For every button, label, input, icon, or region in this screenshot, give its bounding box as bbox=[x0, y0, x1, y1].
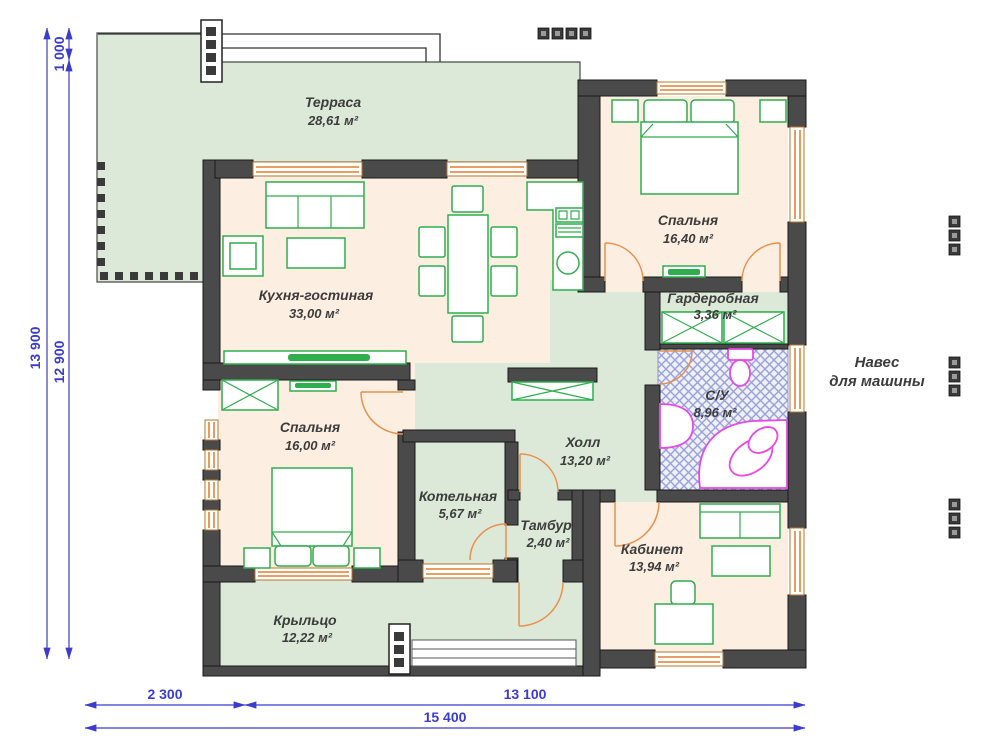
dim-left-top: 1 000 bbox=[51, 36, 67, 71]
coffee-table-icon bbox=[287, 238, 345, 268]
chimney-icon bbox=[201, 20, 222, 82]
area-bathroom: 8,96 м² bbox=[694, 405, 738, 420]
area-wardrobe: 3,36 м² bbox=[694, 307, 738, 322]
closet-icon bbox=[222, 380, 278, 410]
label-wardrobe: Гардеробная bbox=[667, 290, 758, 306]
floor-plan-page: 13 900 12 900 1 000 2 300 13 100 15 400 … bbox=[0, 0, 1000, 750]
window-icon bbox=[205, 480, 218, 500]
porch-pillar-icon bbox=[389, 624, 410, 674]
label-carport-line2: для машины bbox=[829, 373, 925, 390]
area-bedroom1: 16,40 м² bbox=[663, 231, 714, 246]
dim-bottom-right: 13 100 bbox=[504, 686, 547, 702]
dim-bottom-left: 2 300 bbox=[147, 686, 182, 702]
window-icon bbox=[790, 528, 804, 595]
label-bathroom: С/У bbox=[705, 387, 730, 403]
dresser-icon bbox=[663, 266, 705, 277]
area-porch: 12,22 м² bbox=[282, 630, 333, 645]
armchair-icon bbox=[223, 236, 263, 276]
porch-stairs-icon bbox=[412, 640, 576, 666]
window-icon bbox=[655, 652, 723, 666]
area-office: 13,94 м² bbox=[629, 559, 680, 574]
window-icon bbox=[255, 568, 352, 580]
carport-posts bbox=[949, 216, 960, 538]
tv-console-icon bbox=[290, 381, 336, 391]
window-icon bbox=[205, 510, 218, 530]
window-icon bbox=[657, 82, 726, 94]
window-icon bbox=[423, 564, 493, 578]
label-carport-line1: Навес bbox=[855, 354, 900, 371]
label-bedroom1: Спальня bbox=[658, 212, 718, 228]
label-vestibule: Тамбур bbox=[520, 517, 572, 533]
sofa-icon bbox=[266, 182, 364, 228]
tv-console-icon bbox=[224, 351, 406, 364]
legend-marks bbox=[538, 28, 591, 39]
dim-left-total: 13 900 bbox=[27, 326, 43, 369]
label-boiler: Котельная bbox=[419, 488, 497, 504]
window-icon bbox=[205, 420, 218, 440]
window-icon bbox=[205, 450, 218, 470]
label-porch: Крыльцо bbox=[273, 612, 337, 628]
window-icon bbox=[790, 345, 804, 412]
area-terrace: 28,61 м² bbox=[307, 113, 359, 128]
floor-plan-drawing: 13 900 12 900 1 000 2 300 13 100 15 400 … bbox=[0, 0, 1000, 750]
dim-left-main: 12 900 bbox=[51, 340, 67, 383]
area-hall: 13,20 м² bbox=[560, 453, 611, 468]
label-hall: Холл bbox=[565, 434, 601, 450]
label-bedroom2: Спальня bbox=[280, 419, 340, 435]
label-kitchen: Кухня-гостиная bbox=[259, 287, 373, 303]
terrace-door-icon bbox=[447, 162, 527, 176]
area-kitchen: 33,00 м² bbox=[289, 306, 340, 321]
hall-closet-icon bbox=[512, 382, 593, 400]
window-icon bbox=[790, 127, 804, 222]
label-terrace: Терраса bbox=[305, 94, 361, 110]
area-vestibule: 2,40 м² bbox=[526, 535, 571, 550]
label-office: Кабинет bbox=[621, 541, 683, 557]
window-icon bbox=[253, 162, 362, 176]
dim-bottom-total: 15 400 bbox=[424, 709, 467, 725]
area-boiler: 5,67 м² bbox=[439, 506, 483, 521]
area-bedroom2: 16,00 м² bbox=[285, 438, 336, 453]
